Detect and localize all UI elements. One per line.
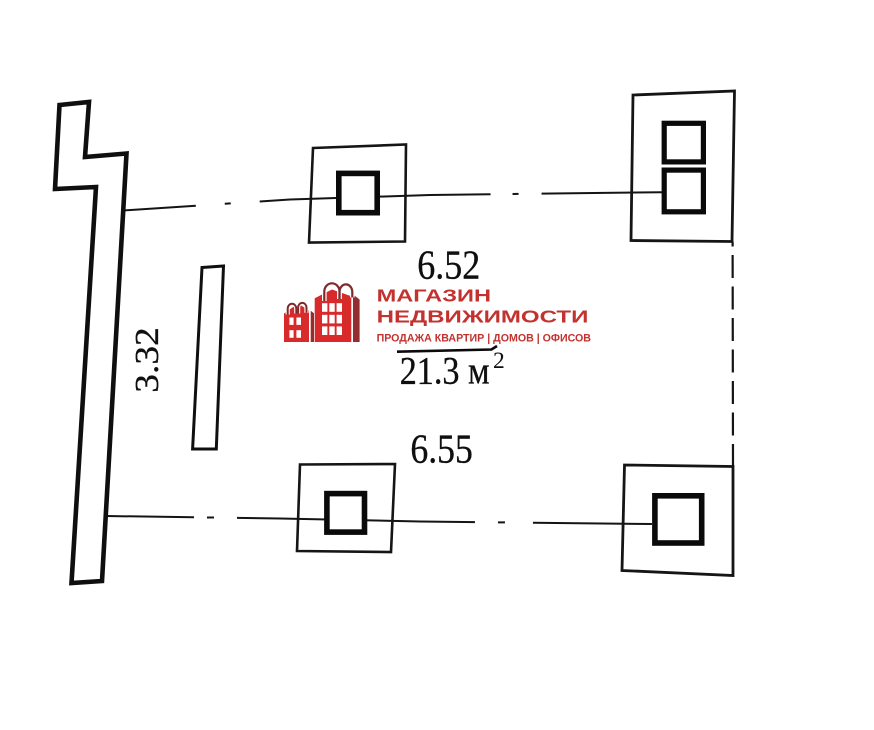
svg-text:ПРОДАЖА КВАРТИР | ДОМОВ | ОФИС: ПРОДАЖА КВАРТИР | ДОМОВ | ОФИСОВ — [377, 333, 591, 345]
svg-text:2: 2 — [493, 348, 505, 374]
svg-text:МАГАЗИН: МАГАЗИН — [377, 285, 491, 305]
svg-text:21.3 м: 21.3 м — [400, 350, 490, 393]
svg-text:6.52: 6.52 — [417, 242, 480, 288]
svg-text:6.55: 6.55 — [410, 426, 473, 472]
svg-text:3.32: 3.32 — [129, 327, 166, 393]
svg-text:НЕДВИЖИМОСТИ: НЕДВИЖИМОСТИ — [377, 307, 589, 327]
